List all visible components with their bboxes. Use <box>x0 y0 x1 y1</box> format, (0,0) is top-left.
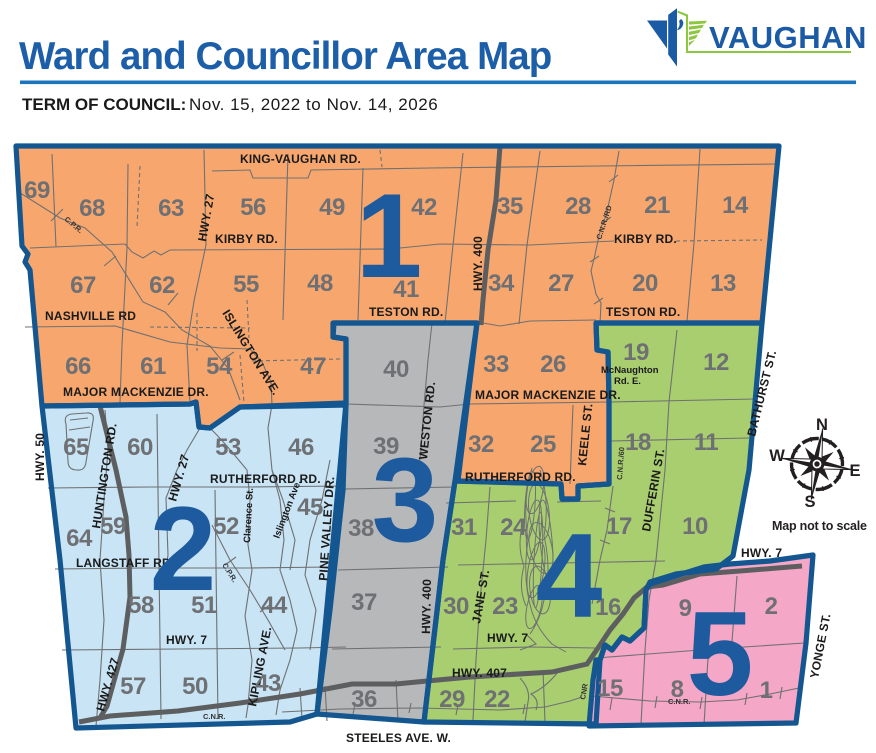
svg-text:25: 25 <box>530 431 556 458</box>
svg-text:27: 27 <box>548 270 574 297</box>
svg-text:E: E <box>849 462 860 480</box>
svg-text:33: 33 <box>483 351 509 378</box>
svg-text:KIRBY RD.: KIRBY RD. <box>215 232 278 246</box>
svg-text:62: 62 <box>149 272 175 299</box>
svg-text:59: 59 <box>100 513 126 540</box>
svg-text:19: 19 <box>623 339 649 366</box>
svg-text:60: 60 <box>127 434 153 461</box>
svg-text:MAJOR MACKENZIE DR.: MAJOR MACKENZIE DR. <box>63 385 209 399</box>
svg-text:53: 53 <box>215 434 241 461</box>
svg-text:KIRBY RD.: KIRBY RD. <box>614 232 677 246</box>
svg-text:56: 56 <box>240 194 266 221</box>
svg-text:HWY. 7: HWY. 7 <box>487 631 528 645</box>
svg-text:1: 1 <box>760 677 773 704</box>
svg-text:HWY. 7: HWY. 7 <box>166 633 207 647</box>
svg-text:22: 22 <box>484 686 510 713</box>
svg-text:2: 2 <box>765 593 778 620</box>
svg-text:HWY. 400: HWY. 400 <box>471 236 485 291</box>
svg-text:35: 35 <box>497 193 523 220</box>
svg-text:38: 38 <box>348 515 374 542</box>
svg-text:4: 4 <box>536 509 603 643</box>
svg-text:HWY. 407: HWY. 407 <box>452 666 507 680</box>
svg-text:C.N.R.: C.N.R. <box>203 712 226 721</box>
svg-text:10: 10 <box>682 513 708 540</box>
svg-text:HWY. 50: HWY. 50 <box>33 433 47 481</box>
svg-text:50: 50 <box>182 673 208 700</box>
svg-text:2: 2 <box>150 482 217 616</box>
svg-text:TESTON RD.: TESTON RD. <box>606 305 680 319</box>
svg-text:54: 54 <box>206 353 233 380</box>
svg-text:28: 28 <box>565 193 591 220</box>
svg-text:47: 47 <box>300 353 326 380</box>
svg-text:STEELES AVE. W.: STEELES AVE. W. <box>346 731 451 745</box>
svg-text:29: 29 <box>439 686 465 713</box>
svg-text:66: 66 <box>65 353 91 380</box>
svg-text:69: 69 <box>24 177 50 204</box>
svg-text:Nov. 15, 2022 to Nov. 14, 2026: Nov. 15, 2022 to Nov. 14, 2026 <box>189 95 438 114</box>
svg-text:W: W <box>769 447 785 465</box>
svg-text:67: 67 <box>70 272 96 299</box>
svg-text:RUTHERFORD RD.: RUTHERFORD RD. <box>210 472 321 486</box>
svg-text:49: 49 <box>319 194 345 221</box>
svg-text:31: 31 <box>451 514 477 541</box>
svg-text:65: 65 <box>63 434 89 461</box>
svg-text:5: 5 <box>687 587 754 721</box>
svg-text:Ward and Councillor Area Map: Ward and Councillor Area Map <box>19 35 551 78</box>
svg-text:48: 48 <box>307 270 333 297</box>
svg-text:24: 24 <box>500 514 527 541</box>
svg-text:37: 37 <box>351 589 377 616</box>
svg-text:TESTON RD.: TESTON RD. <box>369 305 443 319</box>
svg-text:12: 12 <box>703 349 729 376</box>
svg-text:RUTHERFORD RD.: RUTHERFORD RD. <box>465 470 576 484</box>
svg-text:61: 61 <box>140 353 166 380</box>
svg-text:23: 23 <box>492 593 518 620</box>
svg-text:VAUGHAN: VAUGHAN <box>709 20 867 55</box>
svg-text:34: 34 <box>488 270 515 297</box>
svg-text:3: 3 <box>372 433 439 567</box>
svg-text:57: 57 <box>120 673 146 700</box>
svg-text:43: 43 <box>255 670 281 697</box>
svg-text:32: 32 <box>468 431 494 458</box>
svg-text:45: 45 <box>297 494 323 521</box>
svg-text:1: 1 <box>356 169 423 303</box>
svg-text:17: 17 <box>606 513 632 540</box>
svg-text:46: 46 <box>288 434 314 461</box>
svg-text:36: 36 <box>351 686 377 713</box>
svg-text:HWY. 7: HWY. 7 <box>741 546 782 560</box>
svg-text:McNaughton: McNaughton <box>601 365 659 376</box>
svg-text:8: 8 <box>671 676 684 703</box>
svg-text:Rd. E.: Rd. E. <box>614 376 641 387</box>
svg-text:NASHVILLE RD: NASHVILLE RD <box>45 309 136 323</box>
svg-text:21: 21 <box>644 192 670 219</box>
svg-text:64: 64 <box>66 525 93 552</box>
svg-text:63: 63 <box>158 195 184 222</box>
svg-text:KING-VAUGHAN RD.: KING-VAUGHAN RD. <box>240 152 361 166</box>
svg-text:44: 44 <box>261 592 288 619</box>
svg-text:N: N <box>816 416 828 434</box>
svg-text:26: 26 <box>540 351 566 378</box>
svg-text:13: 13 <box>710 270 736 297</box>
svg-text:Map not to scale: Map not to scale <box>772 519 867 533</box>
svg-text:30: 30 <box>443 593 469 620</box>
svg-text:15: 15 <box>597 675 623 702</box>
svg-text:11: 11 <box>694 429 719 456</box>
svg-text:18: 18 <box>625 429 651 456</box>
svg-text:68: 68 <box>79 195 105 222</box>
svg-text:HWY. 400: HWY. 400 <box>419 579 434 634</box>
svg-text:52: 52 <box>213 513 239 540</box>
svg-text:MAJOR MACKENZIE DR.: MAJOR MACKENZIE DR. <box>475 388 621 402</box>
svg-text:14: 14 <box>722 192 749 219</box>
svg-text:S: S <box>804 493 815 511</box>
svg-text:TERM OF COUNCIL:: TERM OF COUNCIL: <box>22 95 186 114</box>
svg-text:40: 40 <box>383 356 409 383</box>
svg-text:55: 55 <box>233 271 259 298</box>
svg-text:20: 20 <box>632 270 658 297</box>
